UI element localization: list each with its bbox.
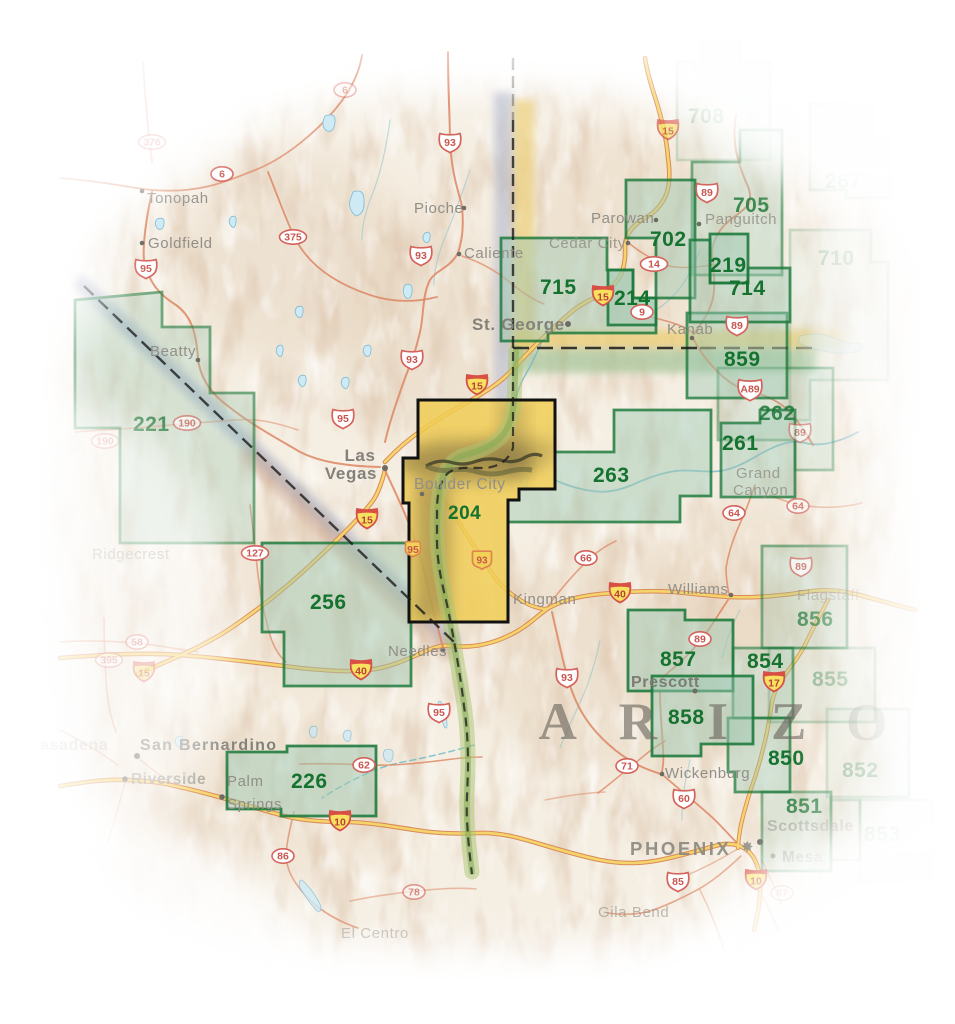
svg-text:Prescott: Prescott <box>631 674 700 691</box>
svg-text:14: 14 <box>648 259 660 271</box>
svg-text:60: 60 <box>678 793 690 805</box>
svg-text:93: 93 <box>415 250 427 262</box>
svg-text:10: 10 <box>334 817 346 829</box>
svg-text:62: 62 <box>358 760 370 772</box>
svg-text:715: 715 <box>540 276 577 299</box>
svg-text:219: 219 <box>710 254 747 277</box>
svg-text:40: 40 <box>614 589 626 601</box>
svg-text:263: 263 <box>593 464 630 487</box>
svg-text:Las: Las <box>344 446 375 465</box>
svg-text:93: 93 <box>476 556 488 567</box>
svg-text:Pioche: Pioche <box>414 200 463 217</box>
svg-text:Williams: Williams <box>668 581 729 598</box>
svg-text:85: 85 <box>672 876 684 888</box>
svg-text:15: 15 <box>471 381 483 393</box>
svg-text:Gila Bend: Gila Bend <box>598 904 669 921</box>
svg-text:854: 854 <box>747 650 784 673</box>
svg-text:71: 71 <box>621 761 633 773</box>
svg-text:40: 40 <box>355 666 367 678</box>
svg-text:Springs: Springs <box>227 796 282 813</box>
svg-text:256: 256 <box>310 591 347 614</box>
svg-text:95: 95 <box>337 413 349 425</box>
svg-text:Wickenburg: Wickenburg <box>665 765 750 782</box>
svg-text:859: 859 <box>724 348 761 371</box>
svg-text:705: 705 <box>733 194 770 217</box>
svg-text:89: 89 <box>701 187 713 199</box>
svg-text:Boulder City: Boulder City <box>414 476 506 493</box>
svg-text:15: 15 <box>597 292 609 304</box>
svg-text:858: 858 <box>668 706 705 729</box>
svg-text:78: 78 <box>408 887 420 899</box>
svg-text:15: 15 <box>662 126 674 138</box>
svg-text:93: 93 <box>561 672 573 684</box>
svg-text:261: 261 <box>722 432 759 455</box>
svg-text:89: 89 <box>694 634 706 646</box>
svg-text:Vegas: Vegas <box>325 464 377 483</box>
svg-text:15: 15 <box>361 515 373 527</box>
svg-text:17: 17 <box>768 678 780 690</box>
svg-text:86: 86 <box>277 851 289 863</box>
svg-text:226: 226 <box>291 770 328 793</box>
svg-text:Beatty: Beatty <box>150 343 196 360</box>
svg-text:375: 375 <box>284 232 302 244</box>
svg-text:66: 66 <box>580 553 592 565</box>
svg-text:PHOENIX: PHOENIX <box>630 838 731 859</box>
svg-text:204: 204 <box>448 503 481 524</box>
svg-text:127: 127 <box>246 548 264 560</box>
svg-text:St. George: St. George <box>472 315 565 334</box>
svg-text:Palm: Palm <box>227 773 264 790</box>
svg-text:93: 93 <box>406 354 418 366</box>
svg-text:190: 190 <box>178 418 196 430</box>
svg-text:I: I <box>707 693 728 751</box>
svg-text:Kingman: Kingman <box>513 591 576 608</box>
svg-text:R: R <box>619 693 658 751</box>
svg-text:Cedar City: Cedar City <box>549 235 626 252</box>
svg-text:Goldfield: Goldfield <box>148 235 213 252</box>
svg-text:95: 95 <box>433 707 445 719</box>
svg-text:93: 93 <box>444 137 456 149</box>
svg-text:Grand: Grand <box>736 465 781 482</box>
svg-text:89: 89 <box>731 320 743 332</box>
svg-text:714: 714 <box>729 277 766 300</box>
svg-text:702: 702 <box>650 228 687 251</box>
svg-text:✸: ✸ <box>741 839 754 856</box>
svg-text:Kanab: Kanab <box>667 321 713 338</box>
svg-text:A89: A89 <box>740 384 759 396</box>
svg-text:857: 857 <box>660 648 697 671</box>
svg-text:95: 95 <box>140 263 152 275</box>
svg-text:214: 214 <box>614 287 651 310</box>
svg-text:Needles: Needles <box>388 643 447 660</box>
svg-text:64: 64 <box>728 508 740 520</box>
svg-text:Canyon: Canyon <box>733 482 788 499</box>
svg-text:A: A <box>539 693 578 751</box>
svg-text:95: 95 <box>407 544 419 556</box>
svg-text:Caliente: Caliente <box>464 245 524 262</box>
svg-text:Parowan: Parowan <box>591 210 654 227</box>
